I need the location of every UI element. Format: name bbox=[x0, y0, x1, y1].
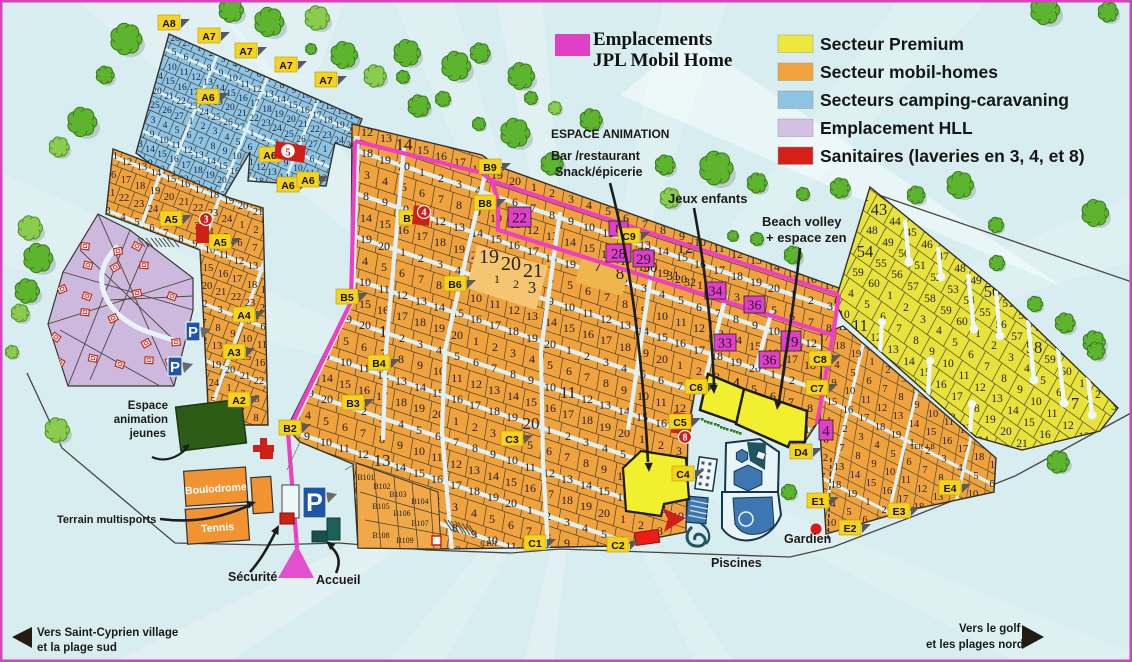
svg-text:14: 14 bbox=[433, 300, 445, 314]
svg-text:19: 19 bbox=[599, 420, 611, 434]
svg-text:60: 60 bbox=[956, 316, 968, 328]
svg-text:13: 13 bbox=[893, 411, 904, 422]
svg-text:10: 10 bbox=[506, 453, 518, 467]
svg-text:B103: B103 bbox=[389, 490, 406, 499]
svg-text:5: 5 bbox=[236, 138, 241, 148]
svg-text:24: 24 bbox=[199, 108, 209, 118]
svg-text:23: 23 bbox=[134, 199, 145, 210]
svg-text:1: 1 bbox=[546, 423, 552, 437]
svg-text:Bar /restaurant: Bar /restaurant bbox=[551, 149, 641, 163]
svg-text:et la plage sud: et la plage sud bbox=[37, 642, 117, 654]
svg-text:18: 18 bbox=[193, 166, 203, 176]
svg-text:6: 6 bbox=[508, 518, 514, 532]
svg-text:18: 18 bbox=[875, 422, 886, 433]
svg-text:26: 26 bbox=[223, 118, 233, 128]
svg-text:1: 1 bbox=[419, 165, 425, 179]
svg-text:34: 34 bbox=[709, 285, 723, 300]
svg-text:Beach volley: Beach volley bbox=[762, 214, 842, 229]
svg-text:3: 3 bbox=[734, 290, 740, 304]
svg-text:C101: C101 bbox=[480, 539, 497, 548]
svg-text:20: 20 bbox=[164, 192, 175, 203]
svg-text:17: 17 bbox=[713, 263, 725, 277]
svg-text:10: 10 bbox=[340, 355, 352, 369]
svg-text:18: 18 bbox=[974, 452, 985, 463]
svg-text:Secteur mobil-homes: Secteur mobil-homes bbox=[820, 62, 998, 82]
svg-text:18: 18 bbox=[247, 280, 258, 291]
svg-text:19: 19 bbox=[526, 331, 538, 345]
svg-text:29: 29 bbox=[636, 252, 651, 268]
svg-text:5: 5 bbox=[381, 260, 387, 274]
svg-text:11: 11 bbox=[219, 250, 229, 261]
svg-text:9: 9 bbox=[871, 459, 876, 470]
svg-text:A7: A7 bbox=[202, 31, 216, 43]
svg-text:46: 46 bbox=[921, 239, 933, 251]
svg-text:13: 13 bbox=[991, 393, 1003, 405]
svg-text:6: 6 bbox=[419, 186, 425, 200]
svg-text:26: 26 bbox=[162, 106, 172, 116]
svg-text:2: 2 bbox=[201, 122, 206, 132]
svg-text:16: 16 bbox=[169, 155, 179, 165]
svg-text:17: 17 bbox=[181, 161, 191, 171]
svg-text:12: 12 bbox=[600, 312, 612, 326]
svg-text:Espace: Espace bbox=[128, 400, 168, 412]
svg-text:A7: A7 bbox=[239, 46, 253, 58]
svg-text:7: 7 bbox=[564, 450, 570, 464]
svg-text:21: 21 bbox=[240, 371, 251, 382]
svg-text:20: 20 bbox=[378, 239, 390, 253]
svg-text:C1: C1 bbox=[528, 538, 542, 550]
svg-text:15: 15 bbox=[157, 150, 167, 160]
svg-text:12: 12 bbox=[917, 484, 928, 495]
svg-text:21: 21 bbox=[179, 197, 190, 208]
svg-text:B105: B105 bbox=[372, 502, 389, 511]
svg-text:14: 14 bbox=[206, 157, 216, 167]
svg-text:B3: B3 bbox=[346, 398, 360, 410]
svg-text:22: 22 bbox=[193, 203, 204, 214]
svg-text:11: 11 bbox=[240, 80, 249, 90]
svg-text:22: 22 bbox=[176, 97, 186, 107]
svg-text:TER 4 B: TER 4 B bbox=[910, 443, 935, 451]
svg-text:3: 3 bbox=[510, 346, 516, 360]
svg-text:Secteurs camping-caravaning: Secteurs camping-caravaning bbox=[820, 90, 1069, 110]
svg-text:14: 14 bbox=[580, 478, 592, 492]
svg-text:14: 14 bbox=[909, 419, 920, 430]
svg-text:8: 8 bbox=[1001, 373, 1007, 385]
svg-text:14: 14 bbox=[1007, 405, 1019, 417]
svg-text:3: 3 bbox=[583, 435, 589, 449]
svg-text:animation: animation bbox=[114, 414, 168, 426]
svg-text:8: 8 bbox=[215, 323, 220, 334]
svg-text:13: 13 bbox=[468, 463, 480, 477]
svg-text:10: 10 bbox=[413, 444, 425, 458]
svg-text:B2: B2 bbox=[283, 423, 297, 435]
svg-text:14: 14 bbox=[564, 235, 576, 249]
svg-text:P: P bbox=[306, 489, 323, 517]
svg-text:A6: A6 bbox=[301, 175, 315, 187]
svg-text:7: 7 bbox=[438, 192, 444, 206]
svg-text:5: 5 bbox=[601, 527, 607, 541]
svg-text:18: 18 bbox=[488, 404, 500, 418]
svg-text:20: 20 bbox=[598, 506, 610, 520]
svg-text:18: 18 bbox=[361, 146, 373, 160]
svg-text:B107: B107 bbox=[411, 519, 428, 528]
svg-text:2: 2 bbox=[584, 349, 590, 363]
svg-text:8: 8 bbox=[211, 142, 216, 152]
svg-text:8: 8 bbox=[363, 189, 369, 203]
svg-text:1: 1 bbox=[869, 357, 874, 368]
svg-text:8: 8 bbox=[472, 441, 478, 455]
svg-text:7: 7 bbox=[195, 59, 200, 69]
svg-text:18: 18 bbox=[581, 413, 593, 427]
svg-text:4: 4 bbox=[225, 133, 230, 143]
svg-text:24: 24 bbox=[222, 214, 233, 225]
svg-text:3: 3 bbox=[204, 215, 209, 226]
svg-text:6: 6 bbox=[866, 376, 871, 387]
svg-text:11: 11 bbox=[582, 306, 594, 320]
svg-text:8: 8 bbox=[253, 413, 258, 424]
svg-text:17: 17 bbox=[786, 352, 798, 366]
svg-text:A4: A4 bbox=[237, 310, 251, 322]
svg-text:4: 4 bbox=[436, 343, 442, 357]
svg-text:4: 4 bbox=[1024, 363, 1030, 375]
svg-text:1: 1 bbox=[250, 129, 255, 139]
svg-text:B101: B101 bbox=[357, 473, 374, 482]
svg-text:A7: A7 bbox=[279, 60, 293, 72]
svg-text:3: 3 bbox=[364, 168, 370, 182]
svg-text:18: 18 bbox=[831, 480, 842, 491]
svg-text:Terrain multisports: Terrain multisports bbox=[57, 514, 156, 526]
svg-text:21: 21 bbox=[216, 287, 227, 298]
svg-text:E2: E2 bbox=[844, 523, 857, 535]
svg-text:22: 22 bbox=[310, 125, 320, 135]
svg-text:9: 9 bbox=[601, 462, 607, 476]
svg-text:55: 55 bbox=[979, 307, 991, 319]
svg-text:16: 16 bbox=[1039, 429, 1051, 441]
svg-text:9: 9 bbox=[223, 147, 228, 157]
svg-text:5: 5 bbox=[890, 449, 895, 460]
svg-text:4: 4 bbox=[936, 325, 942, 337]
svg-text:53: 53 bbox=[947, 284, 959, 296]
svg-text:9: 9 bbox=[382, 195, 388, 209]
svg-text:3: 3 bbox=[568, 192, 574, 206]
svg-text:31: 31 bbox=[667, 268, 680, 283]
svg-text:4: 4 bbox=[621, 361, 627, 375]
svg-text:22: 22 bbox=[119, 193, 130, 204]
svg-text:E4: E4 bbox=[944, 483, 957, 495]
svg-text:36: 36 bbox=[763, 354, 777, 369]
svg-text:A2: A2 bbox=[232, 395, 246, 407]
svg-text:8: 8 bbox=[913, 335, 919, 347]
svg-text:4: 4 bbox=[529, 352, 535, 366]
svg-text:15: 15 bbox=[583, 241, 595, 255]
svg-text:5: 5 bbox=[489, 512, 495, 526]
svg-text:5: 5 bbox=[864, 299, 870, 311]
svg-text:8: 8 bbox=[733, 312, 739, 326]
svg-text:10: 10 bbox=[232, 152, 242, 162]
svg-text:8: 8 bbox=[549, 208, 555, 222]
svg-text:10: 10 bbox=[470, 291, 482, 305]
svg-text:12: 12 bbox=[234, 256, 245, 267]
svg-text:11: 11 bbox=[489, 297, 501, 311]
svg-text:15: 15 bbox=[866, 478, 877, 489]
svg-text:27: 27 bbox=[308, 140, 318, 150]
svg-text:3: 3 bbox=[858, 432, 863, 443]
svg-text:49: 49 bbox=[882, 237, 894, 249]
svg-text:15: 15 bbox=[203, 263, 214, 274]
svg-text:12: 12 bbox=[877, 403, 888, 414]
svg-text:4: 4 bbox=[362, 254, 368, 268]
svg-text:19: 19 bbox=[487, 490, 499, 504]
svg-text:C7: C7 bbox=[810, 383, 824, 395]
svg-text:20: 20 bbox=[544, 337, 556, 351]
svg-text:1: 1 bbox=[400, 245, 406, 259]
svg-text:1: 1 bbox=[473, 334, 479, 348]
svg-text:Sanitaires (laveries en 3, 4,: Sanitaires (laveries en 3, 4, et 8) bbox=[820, 146, 1085, 166]
svg-text:14: 14 bbox=[145, 145, 155, 155]
svg-text:2: 2 bbox=[472, 420, 478, 434]
svg-text:15: 15 bbox=[417, 143, 429, 157]
svg-text:44: 44 bbox=[889, 216, 901, 228]
svg-text:3: 3 bbox=[213, 127, 218, 137]
svg-text:3: 3 bbox=[217, 305, 222, 316]
svg-text:10: 10 bbox=[768, 324, 780, 338]
svg-text:19: 19 bbox=[379, 153, 391, 167]
svg-text:3: 3 bbox=[490, 426, 496, 440]
svg-text:B9: B9 bbox=[483, 162, 497, 174]
svg-text:6: 6 bbox=[184, 53, 189, 63]
svg-text:15: 15 bbox=[656, 330, 668, 344]
svg-text:1: 1 bbox=[494, 272, 500, 286]
svg-text:7: 7 bbox=[360, 426, 366, 440]
svg-text:8: 8 bbox=[603, 376, 609, 390]
svg-text:17: 17 bbox=[600, 333, 612, 347]
svg-text:B6: B6 bbox=[448, 279, 462, 291]
svg-text:23: 23 bbox=[322, 131, 332, 141]
svg-text:6: 6 bbox=[658, 373, 664, 387]
svg-text:5: 5 bbox=[285, 147, 291, 159]
svg-text:15: 15 bbox=[379, 217, 391, 231]
svg-text:D4: D4 bbox=[794, 447, 808, 459]
svg-text:1: 1 bbox=[1079, 378, 1085, 390]
svg-text:17: 17 bbox=[469, 398, 481, 412]
svg-text:5: 5 bbox=[678, 293, 684, 307]
svg-text:3: 3 bbox=[437, 257, 443, 271]
svg-text:25: 25 bbox=[284, 130, 294, 140]
svg-text:12: 12 bbox=[693, 321, 705, 335]
svg-text:15: 15 bbox=[1023, 417, 1035, 429]
svg-text:B4: B4 bbox=[372, 358, 386, 370]
svg-text:3: 3 bbox=[641, 281, 647, 295]
svg-text:A5: A5 bbox=[164, 214, 178, 226]
svg-text:36: 36 bbox=[748, 299, 762, 314]
svg-text:25: 25 bbox=[211, 113, 221, 123]
svg-text:9: 9 bbox=[752, 318, 758, 332]
svg-text:11: 11 bbox=[171, 141, 180, 151]
svg-text:14: 14 bbox=[657, 244, 669, 258]
svg-text:6: 6 bbox=[696, 300, 702, 314]
svg-text:5: 5 bbox=[343, 334, 349, 348]
svg-text:10: 10 bbox=[167, 63, 177, 73]
svg-text:15: 15 bbox=[598, 484, 610, 498]
svg-text:5: 5 bbox=[547, 358, 553, 372]
svg-text:6: 6 bbox=[399, 266, 405, 280]
svg-text:15: 15 bbox=[218, 162, 228, 172]
svg-text:3: 3 bbox=[941, 454, 946, 465]
svg-text:15: 15 bbox=[926, 427, 937, 438]
svg-text:13: 13 bbox=[212, 341, 223, 352]
svg-text:18: 18 bbox=[468, 484, 480, 498]
svg-text:et les plages nord: et les plages nord bbox=[926, 639, 1024, 651]
svg-text:8: 8 bbox=[456, 198, 462, 212]
svg-text:10: 10 bbox=[228, 74, 238, 84]
svg-text:11: 11 bbox=[431, 450, 443, 464]
svg-text:7: 7 bbox=[252, 243, 257, 254]
svg-text:3: 3 bbox=[920, 314, 926, 326]
svg-text:15: 15 bbox=[166, 174, 177, 185]
svg-text:6: 6 bbox=[361, 340, 367, 354]
svg-text:12: 12 bbox=[1062, 420, 1074, 432]
svg-text:9: 9 bbox=[929, 346, 935, 358]
svg-text:7: 7 bbox=[839, 443, 844, 454]
svg-text:17: 17 bbox=[562, 407, 574, 421]
svg-text:23: 23 bbox=[188, 102, 198, 112]
svg-text:B108: B108 bbox=[372, 531, 389, 540]
svg-text:4: 4 bbox=[848, 288, 854, 300]
svg-text:15: 15 bbox=[525, 395, 537, 409]
svg-text:17: 17 bbox=[450, 478, 462, 492]
svg-text:P: P bbox=[188, 324, 198, 341]
svg-text:17: 17 bbox=[250, 99, 260, 109]
svg-text:Tennis: Tennis bbox=[201, 521, 235, 535]
svg-text:22: 22 bbox=[231, 292, 242, 303]
svg-text:1: 1 bbox=[887, 290, 893, 302]
svg-text:2: 2 bbox=[696, 364, 702, 378]
svg-text:16: 16 bbox=[238, 94, 248, 104]
svg-text:24: 24 bbox=[272, 124, 282, 134]
svg-text:18: 18 bbox=[561, 493, 573, 507]
svg-text:20: 20 bbox=[286, 115, 296, 125]
svg-text:3: 3 bbox=[417, 337, 423, 351]
svg-text:B8: B8 bbox=[478, 198, 492, 210]
svg-text:Sécurité: Sécurité bbox=[228, 570, 277, 584]
svg-text:19: 19 bbox=[506, 410, 518, 424]
svg-text:16: 16 bbox=[255, 358, 266, 369]
svg-text:56: 56 bbox=[891, 269, 903, 281]
svg-text:10: 10 bbox=[928, 409, 939, 420]
svg-text:2: 2 bbox=[808, 293, 814, 307]
svg-text:5: 5 bbox=[416, 423, 422, 437]
svg-text:10: 10 bbox=[656, 309, 668, 323]
svg-text:13: 13 bbox=[248, 261, 259, 272]
svg-text:3: 3 bbox=[151, 116, 156, 126]
svg-text:18: 18 bbox=[323, 116, 333, 126]
svg-text:19: 19 bbox=[360, 232, 372, 246]
svg-text:Jeux enfants: Jeux enfants bbox=[668, 191, 747, 206]
svg-text:9: 9 bbox=[568, 214, 574, 228]
svg-text:JPL Mobil Home: JPL Mobil Home bbox=[593, 50, 732, 71]
svg-text:12: 12 bbox=[122, 157, 133, 168]
svg-text:27: 27 bbox=[235, 123, 245, 133]
svg-text:2: 2 bbox=[438, 171, 444, 185]
svg-text:A7: A7 bbox=[319, 75, 333, 87]
svg-text:13: 13 bbox=[561, 472, 573, 486]
svg-text:15: 15 bbox=[490, 232, 502, 246]
svg-text:4: 4 bbox=[602, 441, 608, 455]
svg-text:16: 16 bbox=[655, 416, 667, 430]
svg-text:9: 9 bbox=[417, 358, 423, 372]
svg-text:15: 15 bbox=[827, 397, 838, 408]
svg-text:8: 8 bbox=[898, 392, 903, 403]
svg-text:10: 10 bbox=[942, 358, 954, 370]
svg-text:10: 10 bbox=[544, 380, 556, 394]
svg-text:15: 15 bbox=[288, 101, 298, 111]
svg-text:11: 11 bbox=[179, 68, 188, 78]
svg-text:15: 15 bbox=[339, 377, 351, 391]
svg-text:11: 11 bbox=[378, 282, 390, 296]
svg-text:20: 20 bbox=[768, 281, 780, 295]
svg-text:55: 55 bbox=[875, 258, 887, 270]
svg-text:16: 16 bbox=[300, 106, 310, 116]
svg-text:Vers Saint-Cyprien village: Vers Saint-Cyprien village bbox=[37, 627, 178, 639]
svg-text:16: 16 bbox=[674, 336, 686, 350]
svg-text:21: 21 bbox=[298, 120, 308, 130]
svg-text:C4: C4 bbox=[676, 469, 690, 481]
svg-text:12: 12 bbox=[581, 392, 593, 406]
svg-text:12: 12 bbox=[183, 146, 193, 156]
svg-text:16: 16 bbox=[843, 405, 854, 416]
svg-text:5: 5 bbox=[620, 447, 626, 461]
svg-text:Accueil: Accueil bbox=[316, 573, 360, 587]
svg-text:17: 17 bbox=[489, 318, 501, 332]
svg-text:1: 1 bbox=[697, 278, 703, 292]
svg-text:6: 6 bbox=[310, 155, 315, 165]
svg-text:6: 6 bbox=[187, 131, 192, 141]
svg-text:21: 21 bbox=[253, 207, 264, 218]
svg-text:17: 17 bbox=[693, 343, 705, 357]
svg-text:4: 4 bbox=[422, 208, 427, 219]
svg-text:Vers le golf: Vers le golf bbox=[959, 623, 1021, 635]
svg-text:Emplacement HLL: Emplacement HLL bbox=[820, 118, 973, 138]
svg-text:5: 5 bbox=[973, 471, 978, 482]
svg-text:8: 8 bbox=[583, 456, 589, 470]
svg-text:22: 22 bbox=[512, 210, 527, 226]
svg-text:4: 4 bbox=[163, 121, 168, 131]
svg-text:3: 3 bbox=[528, 278, 537, 297]
svg-text:5: 5 bbox=[323, 414, 329, 428]
svg-text:16: 16 bbox=[935, 379, 947, 391]
svg-text:9: 9 bbox=[397, 438, 403, 452]
svg-text:1: 1 bbox=[323, 145, 328, 155]
svg-text:12: 12 bbox=[252, 85, 262, 95]
svg-text:13: 13 bbox=[395, 374, 407, 388]
svg-text:6: 6 bbox=[260, 322, 265, 333]
svg-text:13: 13 bbox=[599, 398, 611, 412]
svg-text:2: 2 bbox=[565, 429, 571, 443]
svg-text:5: 5 bbox=[850, 368, 855, 379]
svg-text:15: 15 bbox=[165, 77, 175, 87]
svg-text:7: 7 bbox=[1071, 394, 1079, 413]
svg-text:10: 10 bbox=[845, 386, 856, 397]
svg-text:+ espace zen: + espace zen bbox=[766, 230, 847, 245]
svg-text:4: 4 bbox=[874, 440, 880, 451]
svg-text:4: 4 bbox=[582, 521, 588, 535]
svg-text:20: 20 bbox=[202, 281, 213, 292]
svg-text:2: 2 bbox=[842, 424, 847, 435]
svg-text:12: 12 bbox=[191, 73, 201, 83]
svg-text:11: 11 bbox=[861, 395, 871, 406]
svg-text:2: 2 bbox=[418, 251, 424, 265]
svg-text:19: 19 bbox=[211, 360, 222, 371]
